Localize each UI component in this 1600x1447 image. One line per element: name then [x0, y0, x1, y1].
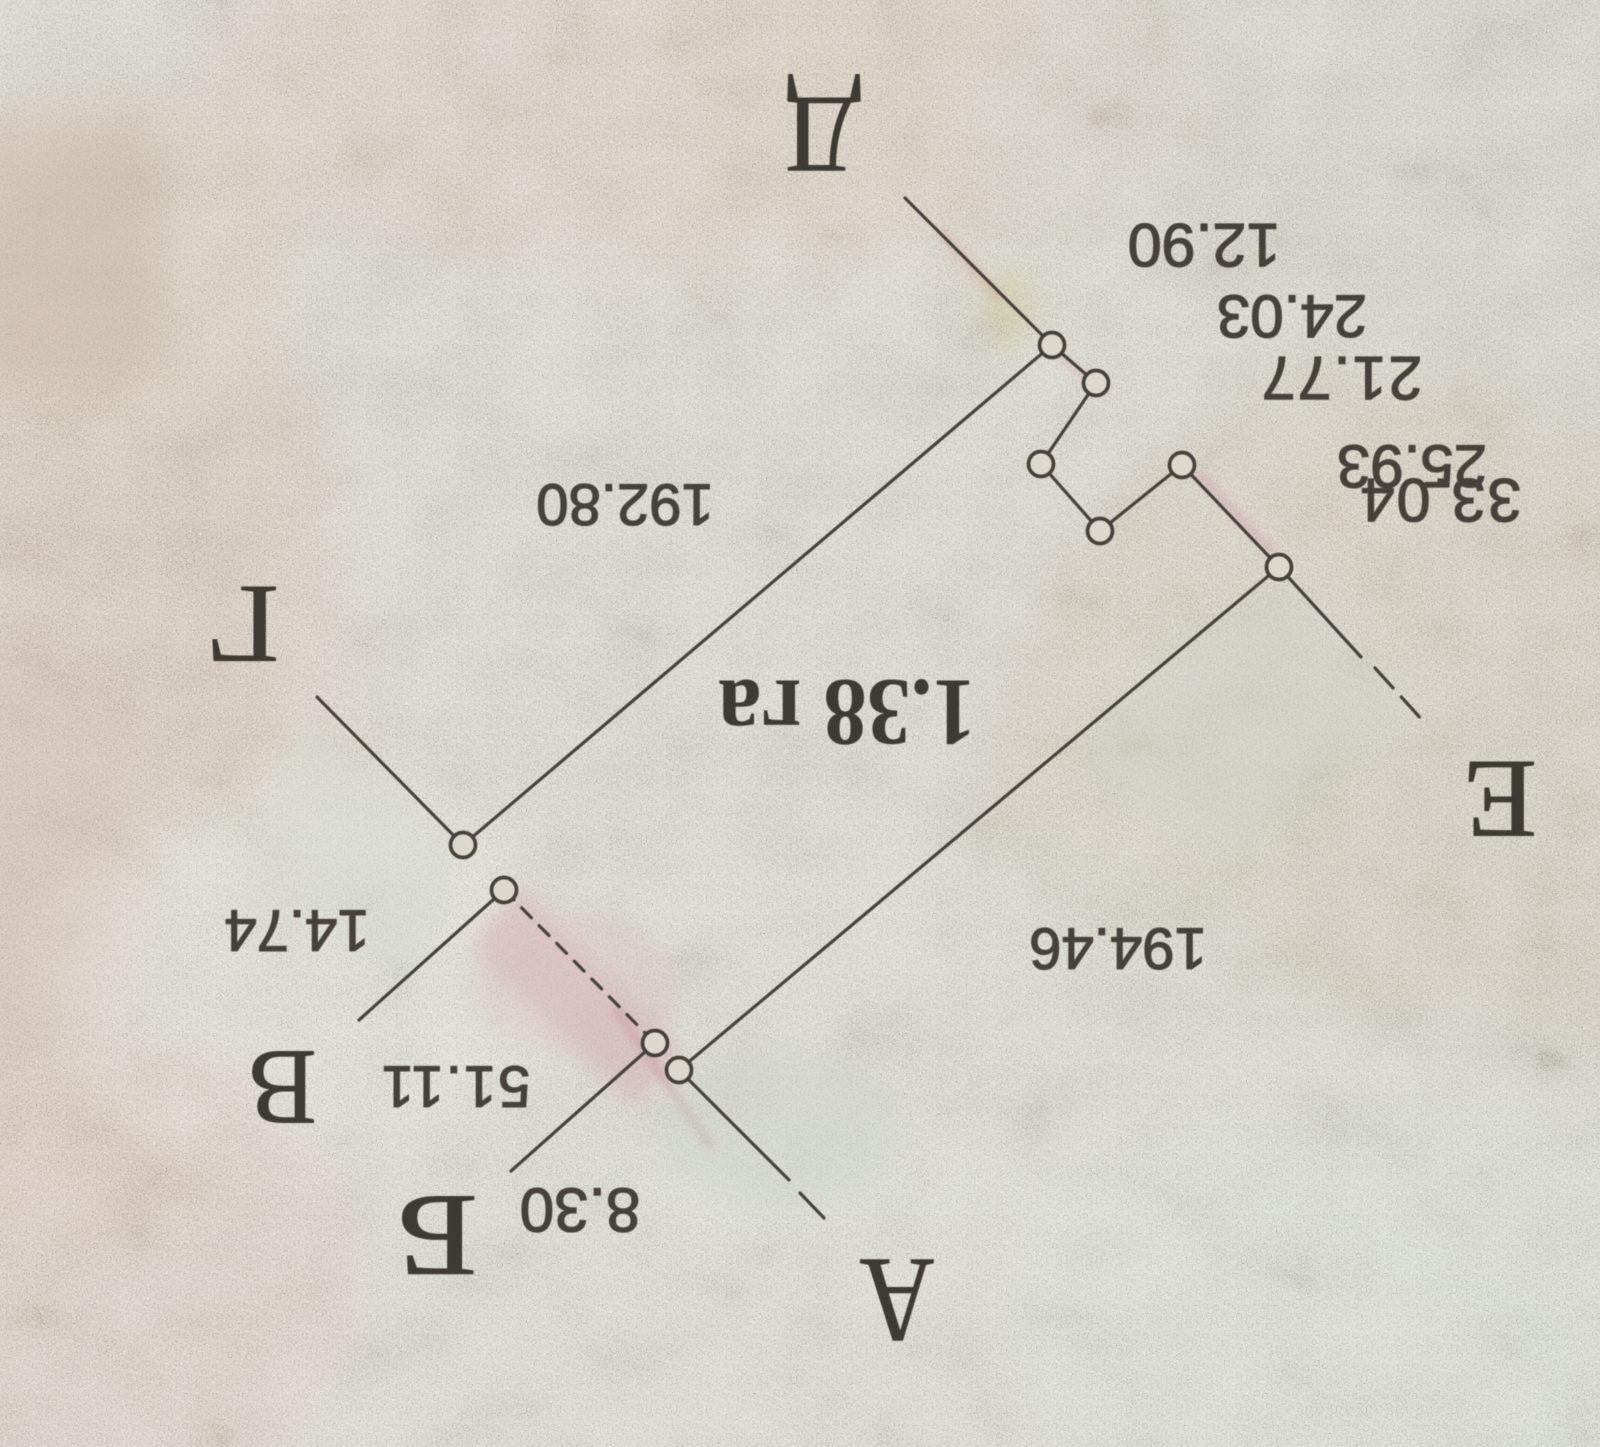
svg-text:51.11: 51.11: [380, 1054, 531, 1119]
svg-text:14.74: 14.74: [224, 898, 369, 963]
svg-text:В: В: [248, 1028, 317, 1147]
svg-text:21.77: 21.77: [1260, 344, 1423, 412]
svg-text:8.30: 8.30: [520, 1175, 641, 1244]
svg-text:192.80: 192.80: [536, 472, 713, 537]
svg-text:194.46: 194.46: [1029, 916, 1206, 981]
svg-text:А: А: [860, 1233, 935, 1368]
svg-text:1.38 га: 1.38 га: [718, 660, 976, 767]
svg-text:24.03: 24.03: [1217, 283, 1367, 350]
svg-text:33.04: 33.04: [1359, 466, 1522, 534]
svg-text:Д: Д: [785, 74, 861, 196]
svg-text:Е: Е: [1463, 737, 1537, 861]
svg-text:Б: Б: [394, 1171, 478, 1302]
svg-text:Г: Г: [209, 562, 279, 686]
svg-text:12.90: 12.90: [1128, 211, 1281, 279]
